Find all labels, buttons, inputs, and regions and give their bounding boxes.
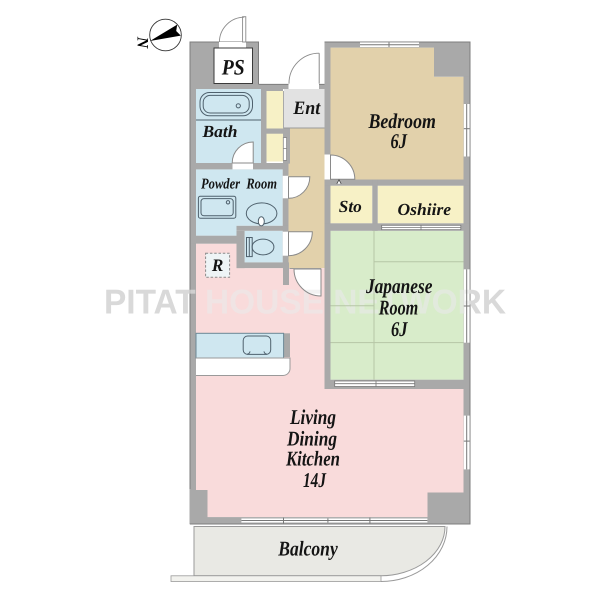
svg-text:Bath: Bath	[201, 122, 237, 141]
svg-text:Room: Room	[378, 296, 418, 320]
svg-text:Balcony: Balcony	[277, 537, 338, 561]
svg-text:6J: 6J	[391, 129, 409, 153]
svg-text:Powder Room: Powder Room	[201, 176, 277, 192]
svg-text:Ent: Ent	[292, 98, 321, 119]
svg-text:14J: 14J	[303, 468, 327, 492]
svg-text:Sto: Sto	[339, 197, 362, 216]
svg-text:N: N	[133, 36, 150, 50]
svg-text:Living: Living	[289, 405, 336, 429]
svg-text:Oshiire: Oshiire	[398, 200, 452, 219]
svg-text:6J: 6J	[391, 317, 409, 341]
svg-text:R: R	[211, 255, 223, 275]
svg-text:Japanese: Japanese	[365, 274, 432, 298]
svg-text:PS: PS	[221, 55, 245, 80]
svg-text:Kitchen: Kitchen	[285, 447, 340, 471]
